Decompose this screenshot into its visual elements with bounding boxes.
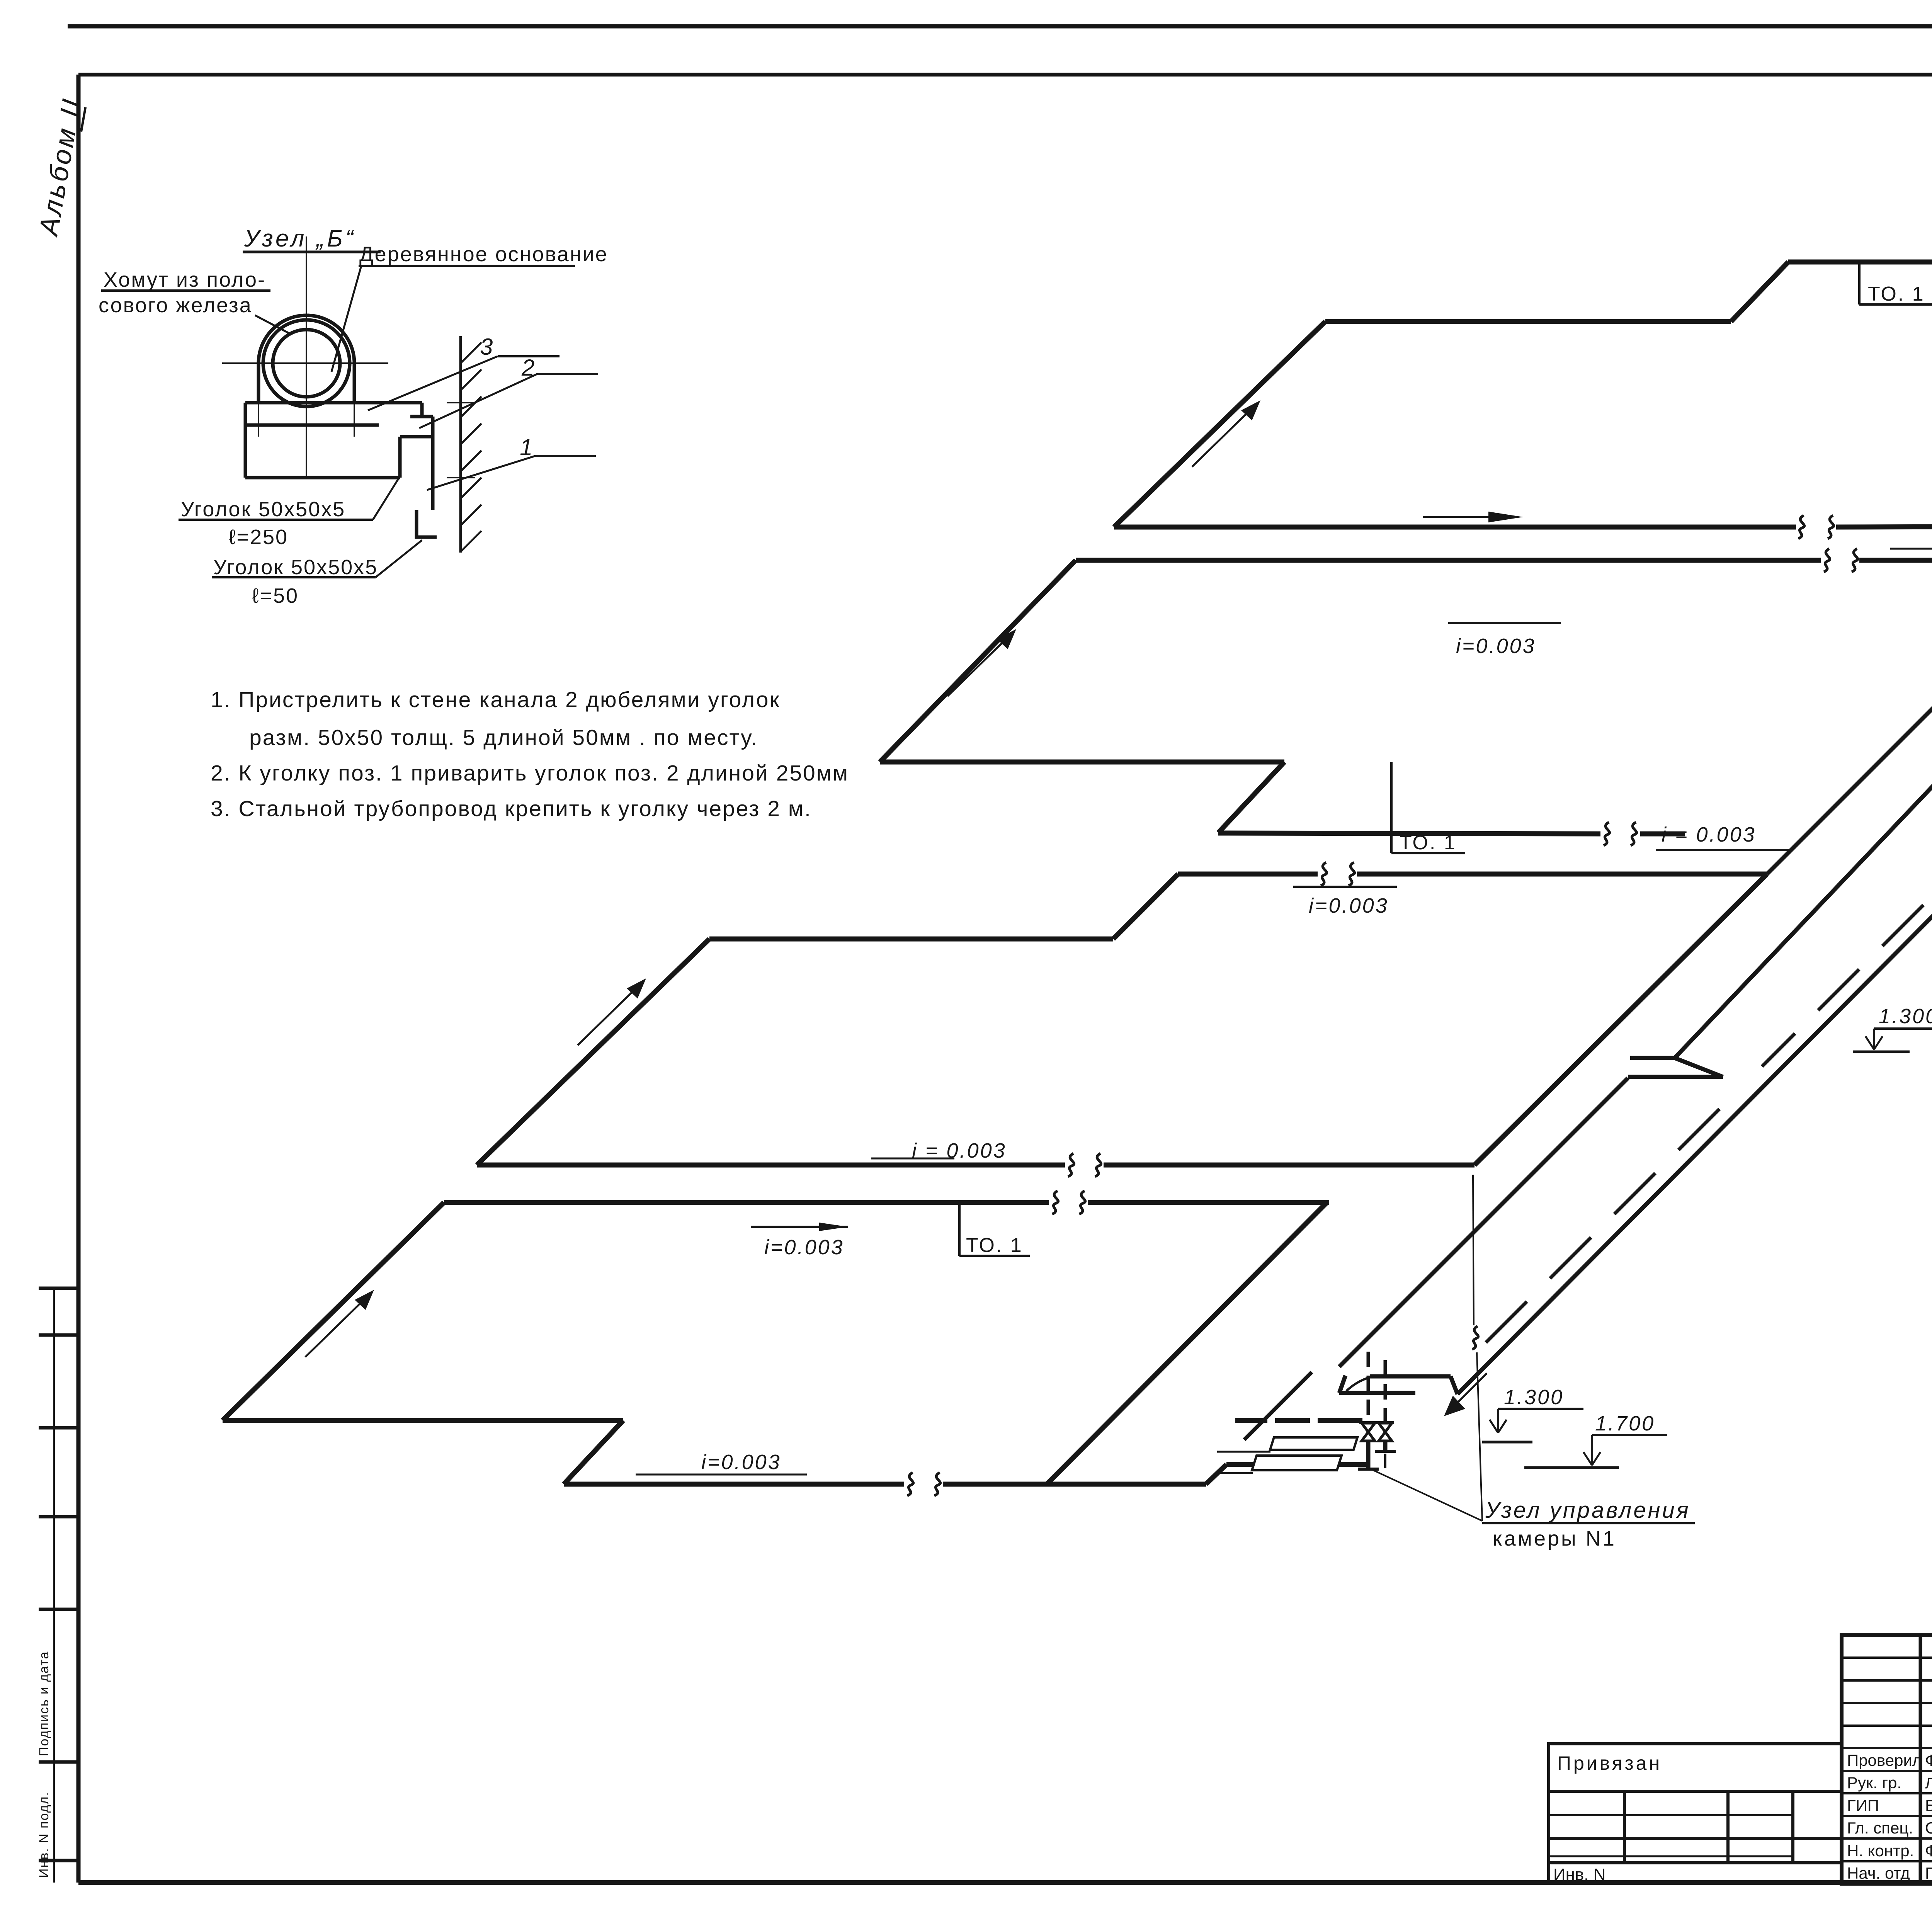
svg-text:2: 2 [521, 355, 534, 381]
svg-text:Подпись и дата: Подпись и дата [37, 1651, 51, 1756]
svg-text:Нач. отд: Нач. отд [1847, 1864, 1910, 1882]
svg-text:Гольдман: Гольдман [1925, 1864, 1932, 1882]
svg-text:Н. контр.: Н. контр. [1847, 1842, 1914, 1860]
svg-text:1.700: 1.700 [1595, 1412, 1655, 1435]
svg-text:Федорова: Федорова [1925, 1842, 1932, 1860]
svg-text:Федорова: Федорова [1925, 1751, 1932, 1769]
svg-text:Будаева: Будаева [1925, 1796, 1932, 1815]
svg-text:разм. 50х50 толщ. 5 длиной 50: разм. 50х50 толщ. 5 длиной 50мм . по мес… [249, 725, 758, 750]
svg-text:Инв. N подл.: Инв. N подл. [37, 1791, 51, 1878]
svg-text:Уголок 50х50х5: Уголок 50х50х5 [181, 498, 345, 521]
svg-text:Инв. N: Инв. N [1553, 1865, 1606, 1884]
svg-text:Сирота: Сирота [1925, 1819, 1932, 1837]
svg-text:Проверил: Проверил [1847, 1751, 1922, 1769]
svg-text:i=0.003: i=0.003 [701, 1451, 781, 1474]
svg-text:1. Пристрелить к стене канала: 1. Пристрелить к стене канала 2 дюбелями… [211, 687, 780, 712]
svg-text:ℓ=50: ℓ=50 [252, 584, 299, 607]
svg-text:Деревянное основание: Деревянное основание [359, 243, 608, 266]
svg-text:ТО. 1: ТО. 1 [966, 1234, 1023, 1257]
svg-text:3: 3 [480, 334, 493, 360]
svg-text:ℓ=250: ℓ=250 [229, 526, 288, 549]
svg-text:Гл. спец.: Гл. спец. [1847, 1819, 1913, 1837]
svg-text:Уголок 50х50х5: Уголок 50х50х5 [213, 556, 378, 579]
svg-text:1.300: 1.300 [1504, 1386, 1564, 1409]
svg-text:ГИП: ГИП [1847, 1796, 1879, 1815]
svg-text:1.300: 1.300 [1879, 1005, 1932, 1028]
svg-text:i=0.003: i=0.003 [1309, 894, 1389, 917]
svg-text:2. К уголку поз. 1 приварить у: 2. К уголку поз. 1 приварить уголок поз.… [211, 761, 849, 786]
svg-text:камеры N1: камеры N1 [1493, 1527, 1616, 1550]
svg-text:Узел управления: Узел управления [1485, 1498, 1690, 1523]
svg-text:ТО. 1: ТО. 1 [1400, 832, 1457, 854]
svg-text:i=0.003: i=0.003 [764, 1236, 844, 1259]
svg-text:сового железа: сового железа [99, 294, 252, 317]
svg-text:ТО. 1: ТО. 1 [1868, 283, 1925, 305]
svg-text:i = 0.003: i = 0.003 [1662, 823, 1756, 846]
svg-text:3. Стальной трубопровод крепит: 3. Стальной трубопровод крепить к уголку… [211, 796, 812, 821]
svg-text:Логвинская: Логвинская [1925, 1775, 1932, 1792]
svg-text:i=0.003: i=0.003 [1456, 634, 1536, 658]
svg-text:Узел „Б“: Узел „Б“ [244, 225, 356, 252]
svg-text:1: 1 [520, 434, 532, 460]
svg-text:Привязан: Привязан [1557, 1752, 1662, 1774]
svg-text:Рук. гр.: Рук. гр. [1847, 1774, 1901, 1792]
svg-text:Хомут из поло-: Хомут из поло- [104, 268, 266, 291]
